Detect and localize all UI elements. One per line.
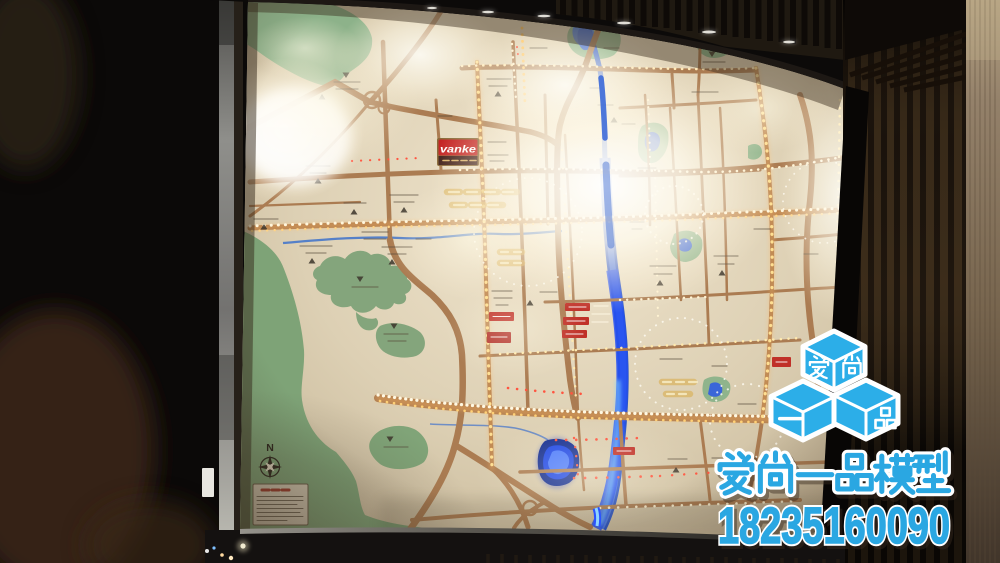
svg-text:18235160090: 18235160090 [718, 497, 950, 554]
